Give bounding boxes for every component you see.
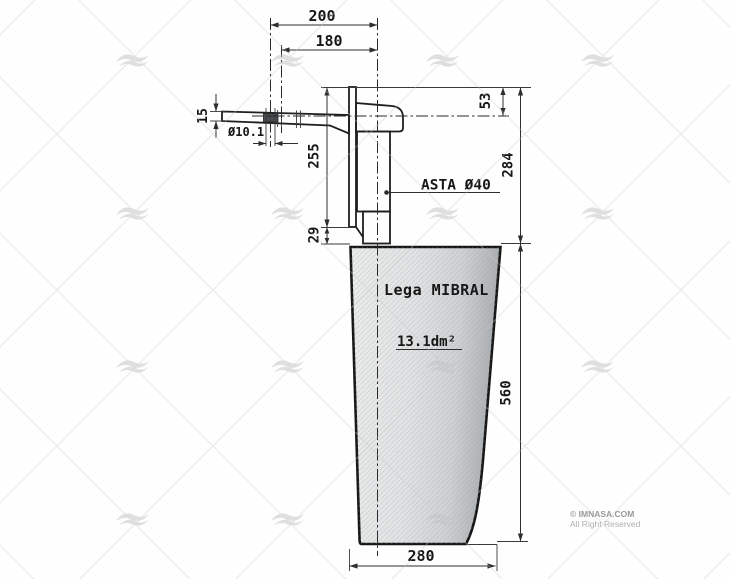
copyright-line2: All Right Reserved (570, 519, 641, 529)
copyright-block: © IMNASA.COM All Right Reserved (570, 509, 641, 529)
diagonal-lattice-watermark (0, 0, 730, 579)
watermark-layer (0, 0, 730, 579)
drawing-page: 200 180 15 Ø10.1 255 29 53 (0, 0, 730, 579)
copyright-line1: © IMNASA.COM (570, 509, 634, 519)
rudder-technical-drawing: 200 180 15 Ø10.1 255 29 53 (0, 0, 730, 579)
